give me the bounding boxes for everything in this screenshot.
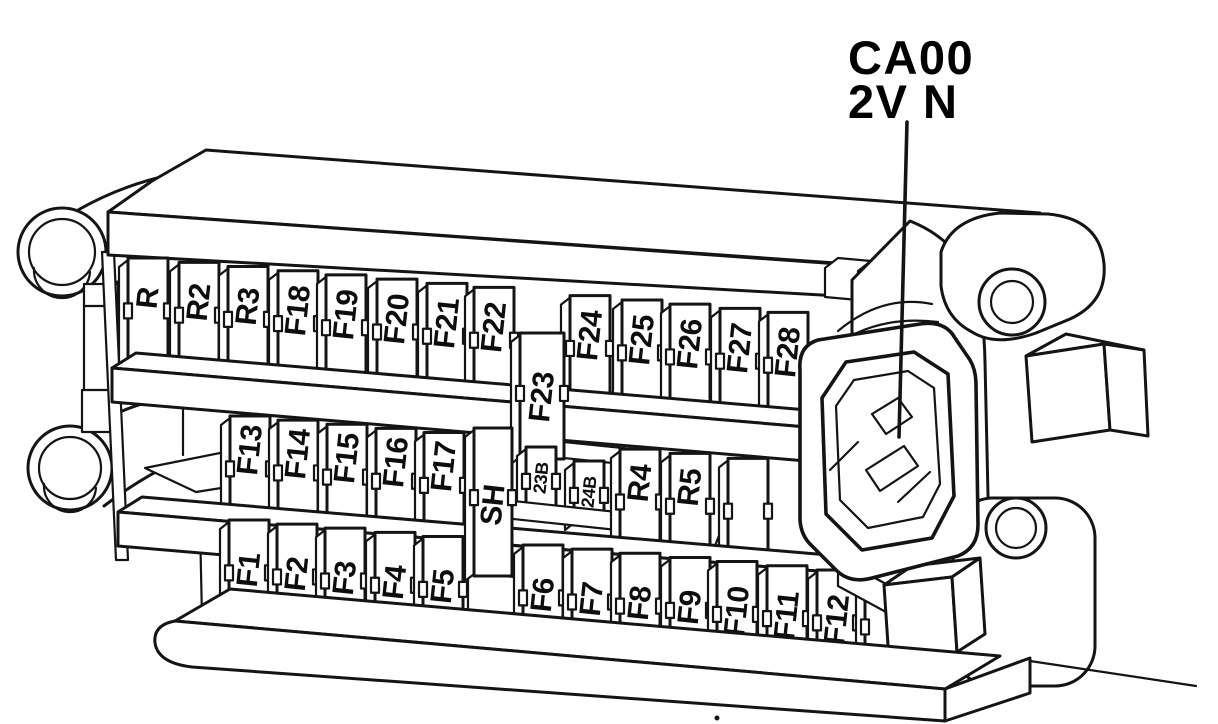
fuse-label: F11 — [768, 590, 806, 642]
fuse-label: F16 — [377, 436, 415, 489]
fuse-label: F17 — [425, 440, 463, 493]
right-mount-cube-bottom — [884, 558, 985, 660]
fuse-box-diagram-page: RR2R3F18F19F20F21F22F24F25F26F27F28 F23 … — [0, 0, 1218, 724]
fuse-label: F25 — [623, 313, 661, 366]
right-mount-ring-bottom — [986, 498, 1046, 558]
fuse-label: F5 — [425, 568, 461, 605]
fuse-label: F1 — [231, 551, 267, 588]
fuse-label: F12 — [818, 593, 856, 646]
fuse-label: F14 — [279, 427, 317, 481]
connector-ca00 — [800, 323, 978, 580]
fuse-label: F10 — [718, 585, 756, 638]
fuse-label: 23B — [529, 461, 552, 495]
fuse-label: 24B — [577, 475, 600, 509]
fuse-label: R2 — [181, 282, 218, 323]
fuse-label: F13 — [231, 423, 269, 476]
fuse-label: F7 — [574, 581, 610, 618]
fuse-label: R3 — [230, 286, 267, 327]
fuse-f23: F23 — [511, 333, 568, 464]
fuse-label: R5 — [672, 467, 709, 508]
fuse-label: F23 — [523, 370, 561, 423]
fuse-label: F22 — [475, 301, 513, 354]
fuse-label: F20 — [378, 292, 416, 345]
fuse-box-diagram: RR2R3F18F19F20F21F22F24F25F26F27F28 F23 … — [0, 0, 1218, 724]
fuse-label: F8 — [622, 585, 658, 622]
callout-line2: 2V N — [848, 75, 959, 128]
tall-fuse-f23: F23 — [511, 333, 568, 464]
right-mount-cylinder-top — [941, 213, 1104, 340]
fuse-label: F4 — [377, 563, 413, 601]
fuse-label: F24 — [571, 308, 609, 362]
fuse-label: F2 — [279, 555, 315, 592]
fuse-label: F18 — [279, 284, 317, 337]
fuse-sh: SH — [465, 428, 516, 581]
fuse-label: F27 — [721, 322, 759, 375]
fuse-label: F9 — [672, 589, 708, 626]
fuse-label: F26 — [671, 317, 709, 370]
fuse-label: SH — [474, 483, 511, 527]
stray-dot — [715, 716, 720, 721]
fuse-label: F3 — [327, 560, 363, 597]
fuse-label: F21 — [428, 297, 466, 350]
right-mount-cube-top — [1026, 334, 1148, 442]
fuse-label: F6 — [525, 576, 561, 613]
fuse-label: R — [130, 285, 165, 310]
fuse-label: F15 — [328, 432, 366, 485]
shunt-fuse: SH — [465, 428, 516, 581]
fuse-label: R4 — [622, 462, 659, 503]
fuse-label: F19 — [327, 288, 365, 341]
